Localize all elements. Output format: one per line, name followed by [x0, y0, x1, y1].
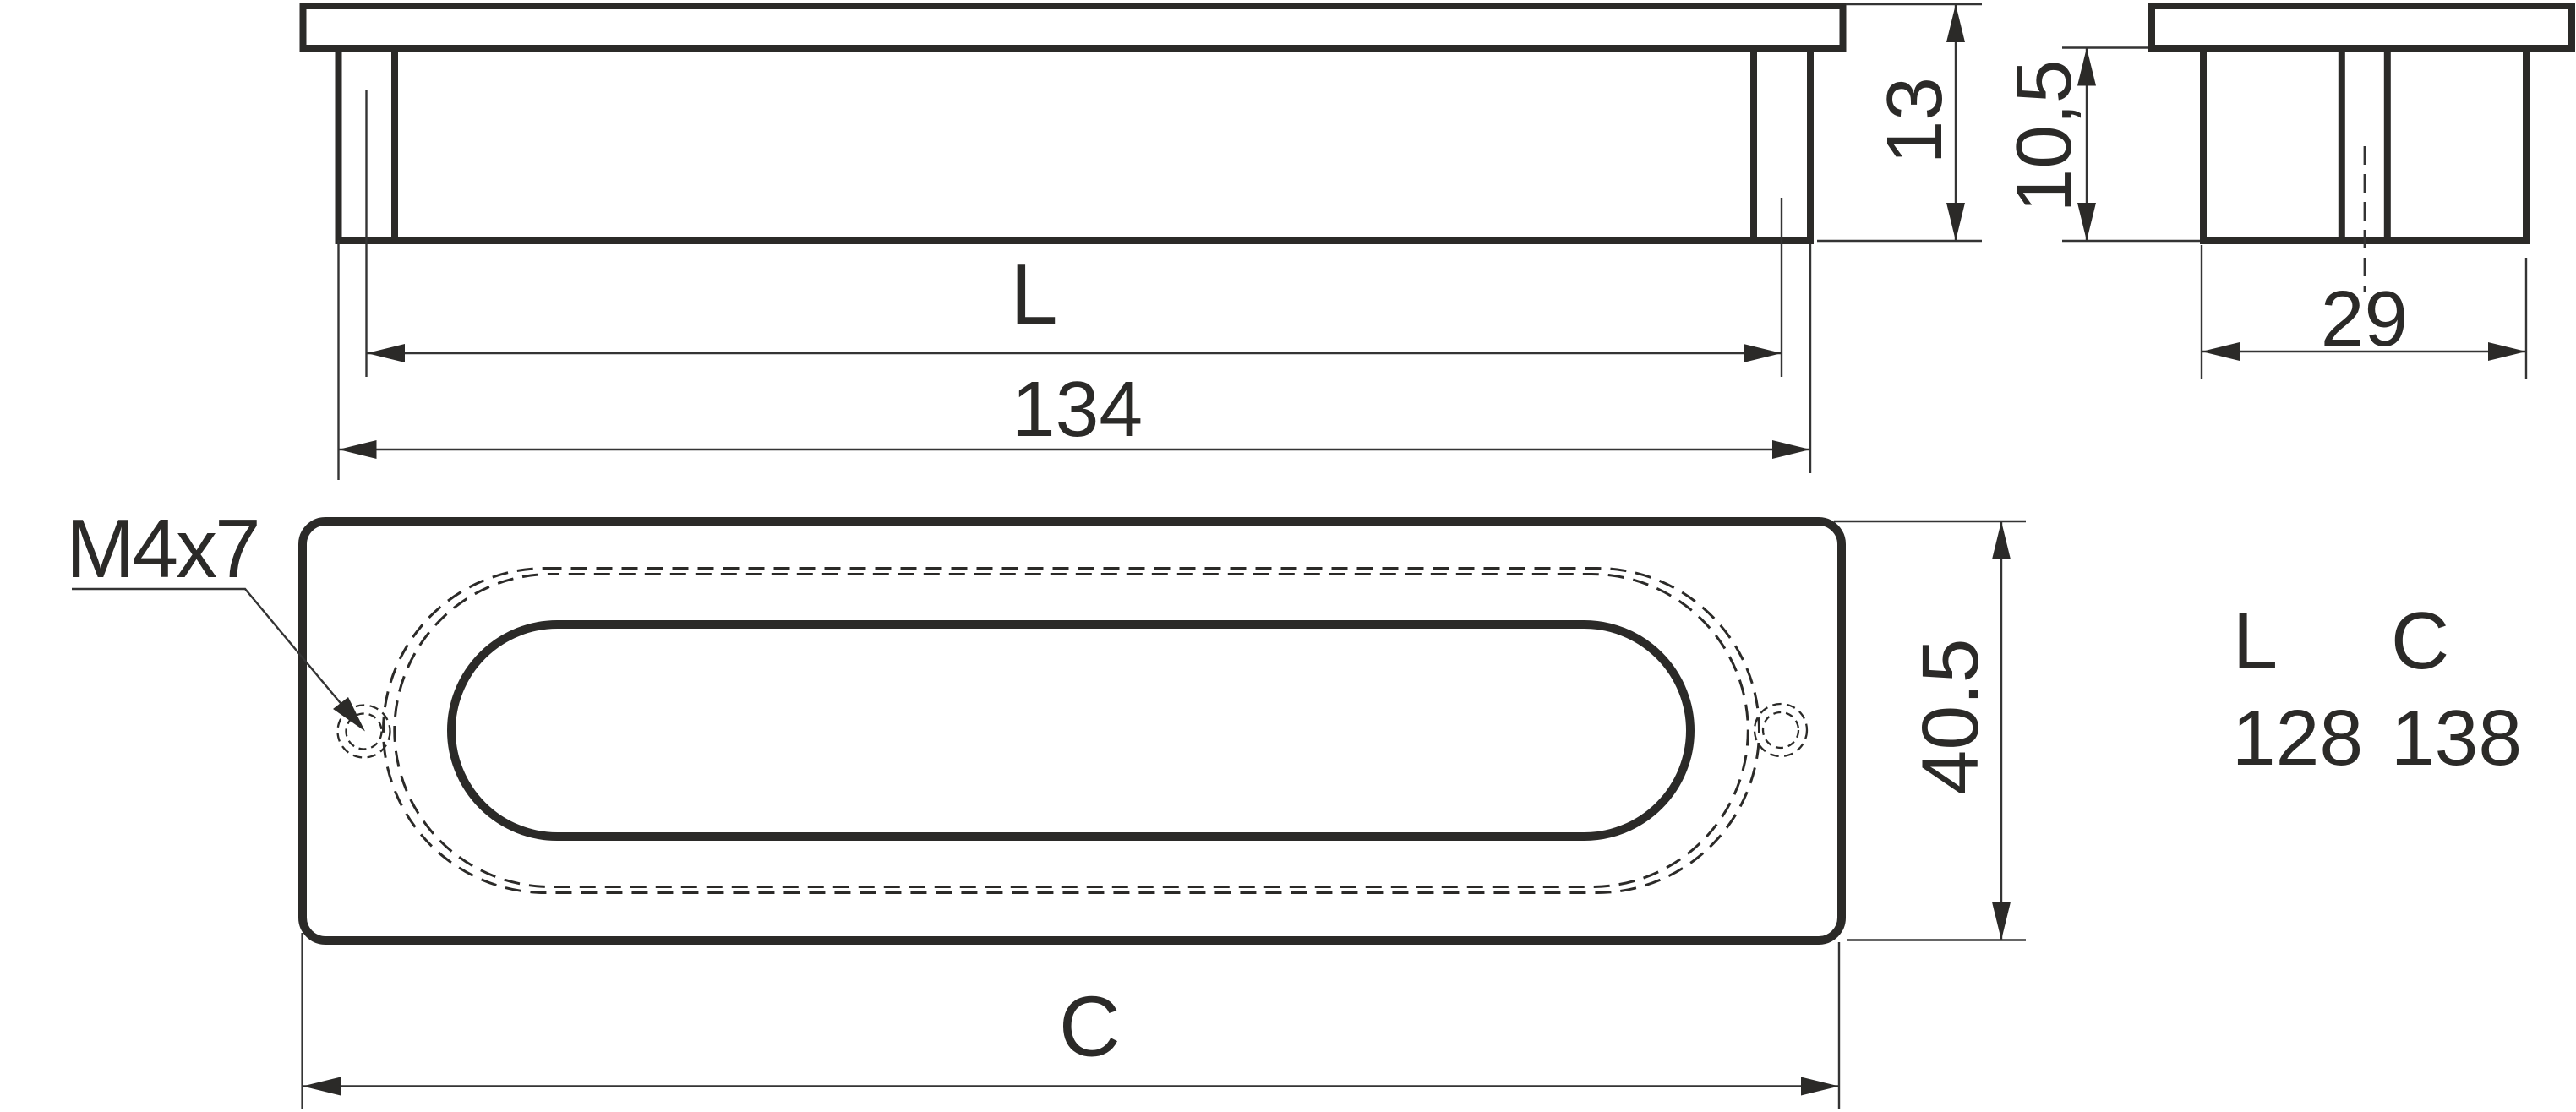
svg-text:128: 128: [2232, 694, 2363, 782]
svg-text:10,5: 10,5: [2000, 59, 2088, 212]
svg-text:C: C: [2391, 596, 2449, 686]
svg-text:138: 138: [2391, 694, 2522, 782]
svg-text:L: L: [2233, 596, 2278, 686]
svg-text:M4x7: M4x7: [66, 502, 259, 595]
svg-text:29: 29: [2321, 275, 2408, 362]
svg-text:13: 13: [1870, 77, 1958, 164]
svg-text:L: L: [1010, 248, 1057, 342]
svg-text:40.5: 40.5: [1906, 639, 1995, 795]
svg-text:C: C: [1059, 980, 1121, 1075]
svg-text:134: 134: [1012, 365, 1143, 453]
